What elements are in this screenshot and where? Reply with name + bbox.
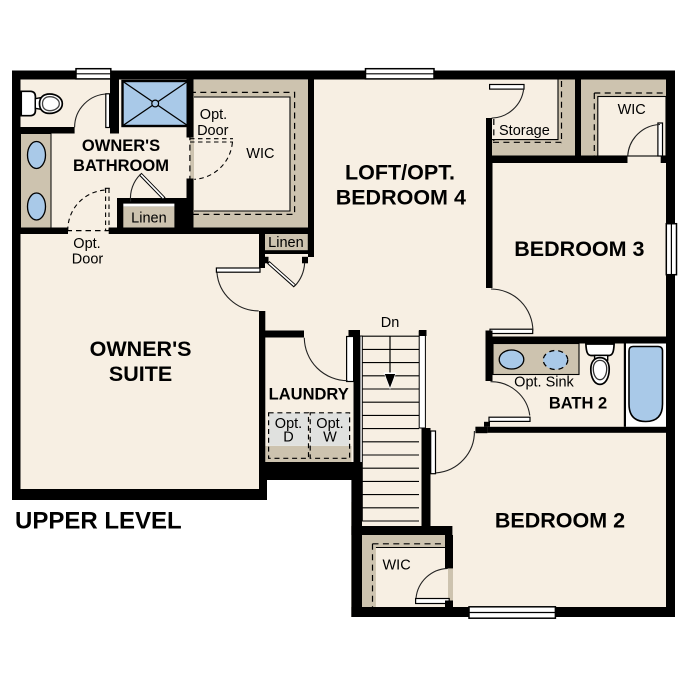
- svg-text:LAUNDRY: LAUNDRY: [269, 386, 349, 404]
- svg-text:BEDROOM 2: BEDROOM 2: [495, 508, 625, 532]
- svg-text:BATHROOM: BATHROOM: [73, 157, 169, 175]
- svg-text:Dn: Dn: [381, 315, 400, 331]
- svg-text:SUITE: SUITE: [109, 362, 172, 386]
- svg-text:Opt. Sink: Opt. Sink: [514, 375, 574, 391]
- svg-text:WIC: WIC: [618, 102, 646, 118]
- svg-text:BEDROOM 3: BEDROOM 3: [514, 237, 644, 261]
- svg-text:Linen: Linen: [131, 211, 166, 227]
- svg-text:WIC: WIC: [383, 557, 411, 573]
- svg-text:Opt.: Opt.: [73, 236, 100, 252]
- svg-text:W: W: [323, 430, 337, 446]
- svg-text:WIC: WIC: [246, 146, 274, 162]
- svg-text:LOFT/OPT.: LOFT/OPT.: [345, 161, 455, 185]
- svg-text:OWNER'S: OWNER'S: [82, 137, 160, 155]
- svg-text:Door: Door: [72, 252, 104, 268]
- svg-text:Storage: Storage: [499, 123, 550, 139]
- svg-text:D: D: [283, 430, 293, 446]
- svg-text:Opt.: Opt.: [200, 107, 227, 123]
- svg-text:UPPER LEVEL: UPPER LEVEL: [15, 508, 182, 535]
- svg-text:Linen: Linen: [268, 235, 303, 251]
- svg-text:OWNER'S: OWNER'S: [90, 337, 192, 361]
- svg-text:BATH 2: BATH 2: [549, 395, 607, 413]
- svg-text:Door: Door: [197, 123, 229, 139]
- svg-text:BEDROOM 4: BEDROOM 4: [336, 186, 466, 210]
